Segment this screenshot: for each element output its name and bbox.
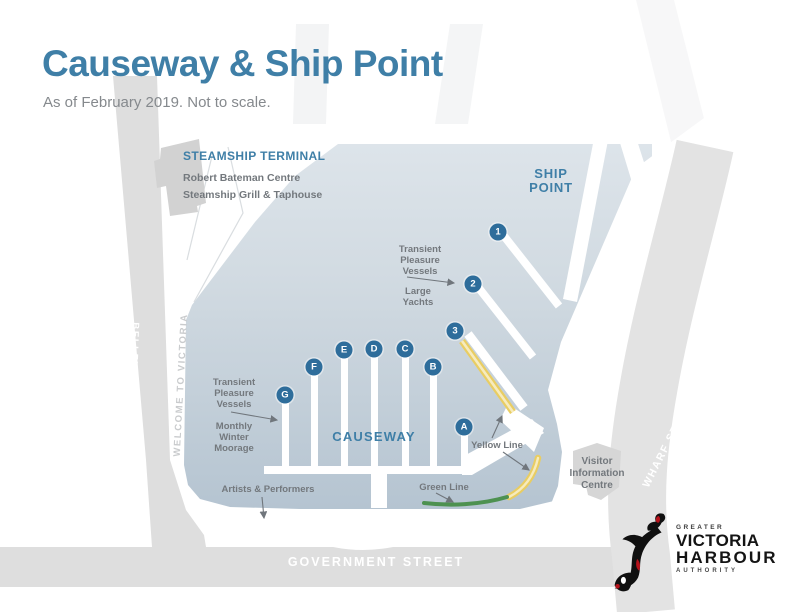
dock-marker-e: E [336, 342, 353, 359]
ship-point-label: SHIP POINT [529, 167, 573, 196]
visitor-information-centre-label: Visitor Information Centre [570, 456, 625, 491]
logo-authority: AUTHORITY [676, 568, 778, 574]
harbour-map-page: Causeway & Ship Point As of February 201… [0, 0, 792, 612]
monthly-winter-moorage-label: Monthly Winter Moorage [214, 421, 254, 455]
dock-marker-d: D [366, 341, 383, 358]
berth-marker-1: 1 [490, 224, 507, 241]
dock-marker-b: B [425, 359, 442, 376]
berth-marker-3: 3 [447, 323, 464, 340]
transient-vessels-causeway-label: Transient Pleasure Vessels [213, 377, 255, 411]
yellow-line-label: Yellow Line [471, 440, 523, 451]
green-line-label: Green Line [419, 482, 469, 493]
logo-harbour: HARBOUR [676, 549, 778, 566]
dock-marker-g: G [277, 387, 294, 404]
logo-greater: GREATER [676, 524, 778, 531]
artists-performers-label: Artists & Performers [222, 484, 315, 495]
dock-marker-c: C [397, 341, 414, 358]
government-street-label: GOVERNMENT STREET [288, 555, 464, 570]
berth-marker-2: 2 [465, 276, 482, 293]
logo-wordmark: GREATER VICTORIA HARBOUR AUTHORITY [676, 524, 778, 574]
logo-victoria: VICTORIA [676, 532, 778, 549]
orca-icon [612, 510, 672, 598]
large-yachts-label: Large Yachts [403, 286, 434, 308]
transient-vessels-shippoint-label: Transient Pleasure Vessels [399, 244, 441, 278]
dock-marker-f: F [306, 359, 323, 376]
page-subtitle: As of February 2019. Not to scale. [43, 94, 271, 112]
harbour-authority-logo: GREATER VICTORIA HARBOUR AUTHORITY [612, 510, 784, 604]
page-title: Causeway & Ship Point [42, 42, 443, 86]
robert-bateman-centre-label: Robert Bateman Centre [183, 172, 300, 185]
dock-marker-a: A [456, 419, 473, 436]
steamship-grill-label: Steamship Grill & Taphouse [183, 189, 322, 202]
steamship-terminal-label: STEAMSHIP TERMINAL [183, 149, 325, 163]
causeway-label: CAUSEWAY [332, 429, 416, 445]
